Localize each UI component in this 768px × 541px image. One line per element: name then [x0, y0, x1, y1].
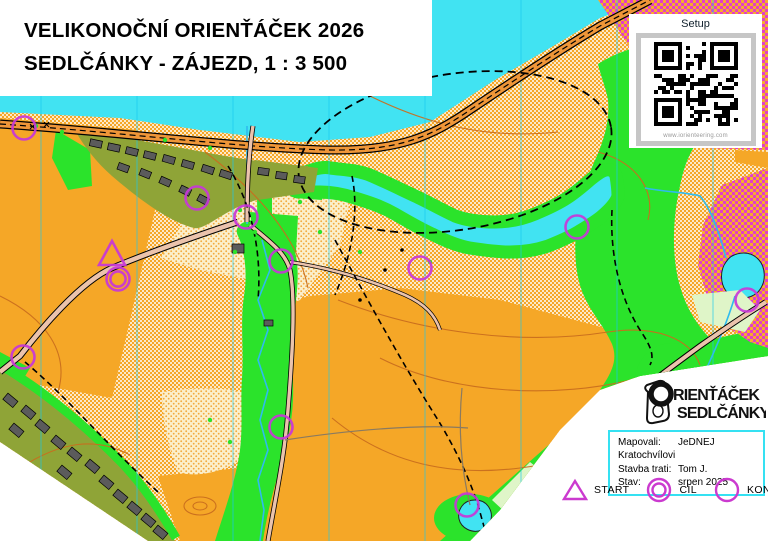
- club-logo: RIENŤÁČEK SEDLČÁNKY: [638, 378, 766, 428]
- control-circle-icon: [713, 476, 741, 504]
- legend-item-finish: CÍL: [645, 476, 697, 504]
- legend-item-start: START: [562, 478, 629, 502]
- qr-url-caption: www.iorienteering.com: [645, 133, 747, 139]
- start-triangle-icon: [562, 478, 588, 502]
- event-title-line2: SEDLČÁNKY - ZÁJEZD, 1 : 3 500: [24, 47, 432, 80]
- qr-label: Setup: [629, 18, 762, 30]
- logo-line1: RIENŤÁČEK: [673, 385, 760, 404]
- qr-frame: www.iorienteering.com: [636, 33, 756, 146]
- legend: START CÍL KONTROLA: [562, 472, 762, 508]
- qr-code: [654, 42, 738, 126]
- logo-o-ring: [651, 384, 671, 404]
- event-title-line1: VELIKONOČNÍ ORIENŤÁČEK 2026: [24, 14, 432, 47]
- qr-panel: Setup www.iorienteering.com: [629, 14, 762, 148]
- credit-row-mappers: Mapovali:JeDNEJ Kratochvílovi: [618, 436, 757, 463]
- logo-line2: SEDLČÁNKY: [677, 403, 766, 422]
- title-panel: VELIKONOČNÍ ORIENŤÁČEK 2026 SEDLČÁNKY - …: [0, 0, 432, 96]
- finish-double-circle-icon: [645, 476, 673, 504]
- legend-item-control: KONTROLA: [713, 476, 768, 504]
